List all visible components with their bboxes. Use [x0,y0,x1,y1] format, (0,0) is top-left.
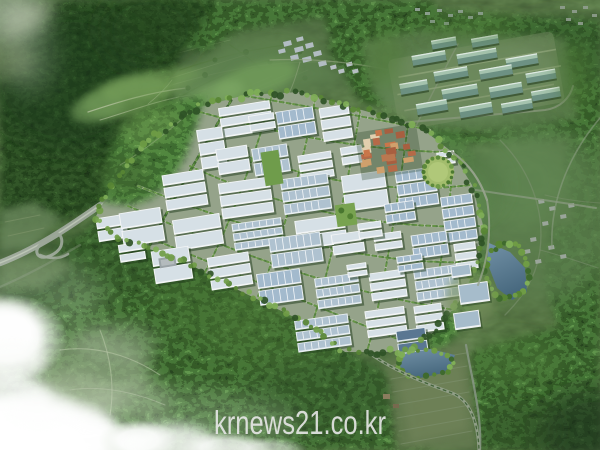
svg-text:krnews21.co.kr: krnews21.co.kr [214,404,386,441]
